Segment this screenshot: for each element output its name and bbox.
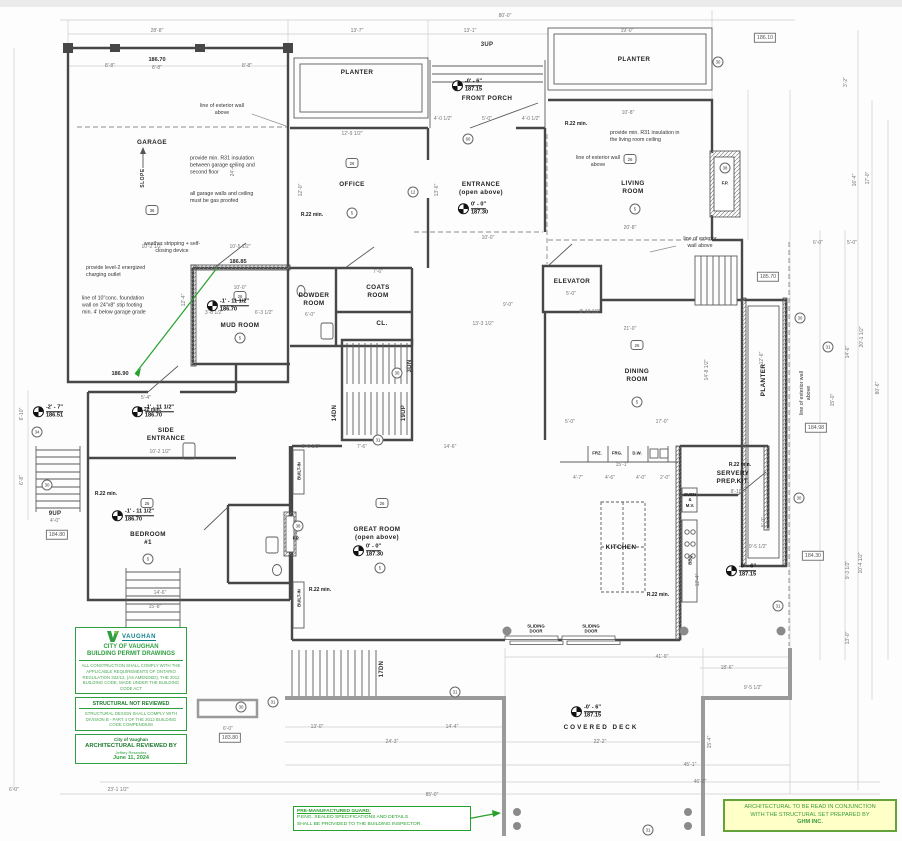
stamp-structural-section: STRUCTURAL NOT REVIEWED STRUCTURAL DESIG…	[75, 697, 187, 731]
spot-elevation: 186.90	[111, 371, 128, 377]
dimension-label: 8'-8"	[105, 63, 115, 69]
dimension-label: 21'-0"	[624, 326, 637, 332]
guard-note-title: PRE-MANUFACTURED GUARD:	[297, 809, 371, 814]
room-label: GREAT ROOM (open above)	[354, 526, 401, 542]
plan-note: provide level-2 energized charging outle…	[86, 265, 145, 279]
dimension-label: 5'-0"	[847, 240, 857, 246]
plan-note: all garage walls and ceiling must be gas…	[190, 191, 253, 205]
reference-tag: 30	[236, 702, 247, 713]
dimension-label: 12'-9 1/2"	[341, 131, 362, 137]
reference-tag: 5	[630, 204, 641, 215]
reference-tag: 26	[631, 340, 644, 350]
dimension-label: 5'-0"	[482, 116, 492, 122]
plan-note: provide min. R31 insulation between gara…	[190, 156, 255, 177]
dimension-label: 41'-9"	[656, 654, 669, 660]
stair-label: 9UP	[49, 511, 62, 517]
reference-tag: 26	[346, 158, 359, 168]
reference-tag: 5	[143, 554, 154, 565]
dimension-label: 5'-0"	[565, 419, 575, 425]
dimension-label: 14'-6"	[845, 346, 851, 359]
reference-tag: 31	[773, 601, 784, 612]
room-label: LIVING ROOM	[621, 180, 644, 196]
dimension-label: 14'-6"	[444, 444, 457, 450]
reference-tag: 26	[141, 498, 154, 508]
fixture-label: FRZ.	[592, 450, 602, 455]
reference-tag: 38	[720, 163, 731, 174]
elevation-value: 187.30	[471, 210, 488, 217]
floor-plan-canvas: GARAGEPLANTERFRONT PORCHPLANTEROFFICEENT…	[0, 0, 902, 841]
fixture-label: SLIDING DOOR	[527, 624, 544, 635]
reference-tag: 36	[146, 205, 159, 215]
dimension-label: 20'-8"	[624, 225, 637, 231]
stamp-body: ALL CONSTRUCTION SHALL COMPLY WITH THE A…	[79, 660, 183, 691]
dimension-label: 18'-6"	[721, 665, 734, 671]
reference-tag: 31	[268, 697, 279, 708]
elevation-marker: -1' - 11 1/2" 186.70	[207, 298, 249, 313]
boxed-elevation: 186.10	[754, 33, 776, 43]
structural-title: STRUCTURAL NOT REVIEWED	[79, 700, 183, 708]
elevation-target-icon	[207, 301, 218, 312]
dimension-label: 15'-4"	[707, 736, 713, 749]
insulation-note: R.22 min.	[647, 592, 669, 598]
elevation-level: 0' - 0"	[471, 201, 486, 209]
ghm-note: ARCHITECTURAL TO BE READ IN CONJUNCTION …	[723, 799, 897, 832]
dimension-label: 14'-8 1/2"	[704, 359, 710, 380]
dimension-label: 16'-4"	[852, 174, 858, 187]
vaughan-logo-text: VAUGHAN	[122, 634, 156, 641]
elevation-target-icon	[353, 546, 364, 557]
dimension-label: 10'-0"	[482, 235, 495, 241]
guard-note-body: P.ENG. SEALED SPECIFICATIONS AND DETAILS…	[297, 815, 467, 828]
dimension-label: 13'-1"	[464, 28, 477, 34]
dimension-label: 6'-8"	[19, 475, 25, 485]
fixture-label: FRG.	[612, 450, 622, 455]
dimension-label: 17'-0"	[656, 419, 669, 425]
elevation-level: -1' - 11 1/2"	[220, 298, 249, 306]
dimension-label: 28'-8"	[151, 28, 164, 34]
room-label: BEDROOM #1	[130, 531, 166, 547]
dimension-label: 6'-3 1/2"	[255, 310, 273, 316]
room-label: KITCHEN	[606, 544, 637, 552]
reference-tag: 26	[624, 154, 637, 164]
elevation-value: 187.30	[366, 552, 383, 559]
plan-note: line of exterior wall above	[799, 371, 813, 415]
dimension-label: 5'-4"	[141, 395, 151, 401]
dimension-label: 4'-0 1/2"	[434, 116, 452, 122]
reference-tag: 30	[392, 368, 403, 379]
elevation-level: -1' - 11 1/2"	[145, 404, 174, 412]
elevation-target-icon	[132, 407, 143, 418]
reference-tag: 60	[463, 134, 474, 145]
elevation-marker: -1' - 11 1/2" 186.70	[112, 508, 154, 523]
dimension-label: 15'-1"	[616, 462, 629, 468]
ghm-note-text: ARCHITECTURAL TO BE READ IN CONJUNCTION …	[727, 804, 893, 819]
fixture-label: SLIDING DOOR	[582, 624, 599, 635]
reviewed-org: City of Vaughan	[79, 737, 183, 742]
reference-tag: 30	[42, 480, 53, 491]
elevation-marker: 0' - 0" 187.30	[353, 543, 383, 558]
dimension-label: 12'-6"	[759, 352, 765, 365]
stair-label: 19UP	[401, 405, 407, 421]
dimension-label: 80'-0"	[499, 13, 512, 19]
dimension-label: 5'-0"	[761, 517, 767, 527]
fixture-label: BUILT-IN	[296, 589, 301, 607]
stair-label: 3UP	[481, 42, 494, 48]
elevation-value: 187.15	[739, 572, 756, 579]
dimension-label: 9'-5 1/2"	[744, 685, 762, 691]
guard-note: PRE-MANUFACTURED GUARD: P.ENG. SEALED SP…	[293, 806, 471, 831]
room-label: DINING ROOM	[625, 368, 649, 384]
boxed-elevation: 183.80	[219, 733, 241, 743]
room-label: COVERED DECK	[564, 724, 639, 732]
dimension-label: 9'-3 1/2"	[845, 561, 851, 579]
room-label: OFFICE	[339, 181, 365, 189]
reference-tag: 12	[408, 187, 419, 198]
room-label: PLANTER	[341, 69, 374, 77]
plan-note: weather stripping + self- closing device	[144, 241, 200, 255]
plan-note: provide min. R31 insulation in the livin…	[610, 130, 680, 144]
reviewed-title: ARCHITECTURAL REVIEWED BY	[79, 743, 183, 749]
elevation-level: -0' - 6"	[465, 78, 482, 86]
dimension-label: 22'-2"	[594, 739, 607, 745]
room-label: PLANTER	[760, 364, 768, 397]
fixture-label: OVEN & M.V.	[684, 492, 696, 508]
dimension-label: 6'-0"	[9, 787, 19, 793]
elevation-value: 187.15	[465, 87, 482, 94]
dimension-label: 12'-4"	[695, 574, 701, 587]
reference-tag: 31	[643, 825, 654, 836]
dimension-label: 10'-4 1/2"	[858, 552, 864, 573]
elevation-target-icon	[452, 81, 463, 92]
dimension-label: 46'-5"	[694, 779, 707, 785]
dimension-label: 8'-10 1/2"	[579, 309, 600, 315]
reference-tag: 5	[632, 397, 643, 408]
reference-tag: 5	[375, 563, 386, 574]
insulation-note: R.22 min.	[95, 491, 117, 497]
dimension-label: 5'-6 1/2"	[302, 444, 320, 450]
elevation-level: -2' - 7"	[46, 404, 63, 412]
insulation-note: R.22 min.	[301, 212, 323, 218]
dimension-label: 10'-2 1/2"	[149, 449, 170, 455]
elevation-value: 186.70	[125, 517, 142, 524]
elevation-marker: -0' - 6" 187.15	[726, 563, 756, 578]
dimension-label: 13'-3 1/2"	[472, 321, 493, 327]
boxed-elevation: 184.30	[802, 551, 824, 561]
vaughan-logo: VAUGHAN	[79, 631, 183, 643]
fixture-label: F.P.	[293, 535, 300, 540]
elevation-level: -0' - 6"	[584, 704, 601, 712]
insulation-note: R.22 min.	[565, 121, 587, 127]
plan-note: line of exterior wall above	[683, 236, 716, 250]
vaughan-logo-icon	[106, 631, 120, 643]
elevation-value: 186.51	[46, 413, 63, 420]
room-label: ENTRANCE (open above)	[459, 181, 503, 197]
room-label: MUD ROOM	[221, 322, 260, 330]
dimension-label: 5'-0"	[566, 291, 576, 297]
dimension-label: 24'-3"	[386, 739, 399, 745]
dimension-label: 6'-0"	[305, 312, 315, 318]
structural-body: STRUCTURAL DESIGN SHALL COMPLY WITH DIVI…	[79, 708, 183, 728]
elevation-target-icon	[33, 407, 44, 418]
dimension-label: 3'-2"	[843, 77, 849, 87]
reference-tag: 26	[376, 498, 389, 508]
stair-label: 14DN	[332, 405, 338, 422]
dimension-label: 8'-10"	[731, 489, 744, 495]
dimension-label: 13'-7"	[351, 28, 364, 34]
plan-note: SLOPE	[140, 168, 147, 187]
elevation-target-icon	[458, 204, 469, 215]
room-label: POWDER ROOM	[299, 292, 330, 308]
room-label: ELEVATOR	[554, 278, 590, 286]
dimension-label: 4'-0"	[50, 518, 60, 524]
dimension-label: 4'-0 1/2"	[522, 116, 540, 122]
dimension-label: 80'-6"	[875, 382, 881, 395]
fixture-label: F.P.	[722, 180, 729, 185]
dimension-label: 6'-10"	[19, 408, 25, 421]
reference-tag: 31	[373, 435, 384, 446]
boxed-elevation: 184.98	[805, 423, 827, 433]
reference-tag: 31	[450, 687, 461, 698]
plan-note: line of exterior wall above	[576, 155, 620, 169]
dimension-label: 10'-8"	[622, 110, 635, 116]
reference-tag: 30	[795, 313, 806, 324]
dimension-label: 2'-0"	[660, 475, 670, 481]
elevation-level: -0' - 6"	[739, 563, 756, 571]
stair-label: 3DN	[407, 360, 413, 373]
elevation-level: 0' - 0"	[366, 543, 381, 551]
dimension-label: 13'-0"	[845, 632, 851, 645]
reference-tag: 30	[713, 57, 724, 68]
dimension-label: 8'-8"	[242, 63, 252, 69]
plan-note: line of exterior wall above	[200, 103, 244, 117]
dimension-label: 13'-6"	[434, 184, 440, 197]
boxed-elevation: 185.70	[757, 272, 779, 282]
room-label: SERVERY PREP.KIT.	[717, 470, 750, 486]
dimension-label: 14'-4"	[446, 724, 459, 730]
dimension-label: 10'-5 1/2"	[229, 244, 250, 250]
boxed-elevation: 184.80	[46, 530, 68, 540]
fixture-label: BBQ	[687, 555, 692, 565]
dimension-label: 12'-4"	[181, 294, 187, 307]
dimension-label: 15'-8"	[149, 604, 162, 610]
reference-tag: 30	[794, 493, 805, 504]
room-label: PLANTER	[618, 56, 651, 64]
room-label: COATS ROOM	[366, 284, 390, 300]
dimension-label: 4'-6"	[605, 475, 615, 481]
elevation-value: 186.70	[145, 413, 162, 420]
dimension-label: 8'-8"	[152, 65, 162, 71]
elevation-value: 186.70	[220, 307, 237, 314]
dimension-label: 9'-0"	[503, 302, 513, 308]
elevation-target-icon	[726, 566, 737, 577]
reference-tag: 31	[823, 342, 834, 353]
elevation-target-icon	[571, 707, 582, 718]
fixture-label: BUILT-IN	[296, 462, 301, 480]
plan-note: line of 10"conc. foundation wall on 24"x…	[82, 296, 146, 317]
room-label: GARAGE	[137, 139, 167, 147]
reference-tag: 38	[293, 521, 304, 532]
dimension-label: 85'-0"	[426, 792, 439, 798]
room-label: CL.	[376, 320, 387, 328]
dimension-label: 12'-0"	[298, 184, 304, 197]
sliding-door-panels	[505, 636, 620, 645]
elevation-marker: -2' - 7" 186.51	[33, 404, 63, 419]
dimension-label: 23'-1 1/2"	[107, 787, 128, 793]
reference-tag: 5	[235, 333, 246, 344]
elevation-target-icon	[112, 511, 123, 522]
room-label: SIDE ENTRANCE	[147, 427, 185, 443]
elevation-marker: -0' - 6" 187.15	[571, 704, 601, 719]
dimension-label: 15'-0"	[830, 394, 836, 407]
dimension-label: 14'-6"	[154, 590, 167, 596]
reference-tag: 5	[347, 208, 358, 219]
dimension-label: 7'-6"	[357, 444, 367, 450]
dimension-label: 6'-0"	[813, 240, 823, 246]
dimension-label: 19'-0"	[621, 28, 634, 34]
insulation-note: R.22 min.	[309, 587, 331, 593]
stamp-reviewed-section: City of Vaughan ARCHITECTURAL REVIEWED B…	[75, 734, 187, 764]
insulation-note: R.22 min.	[729, 462, 751, 468]
review-date: June 11, 2024	[79, 755, 183, 761]
dimension-label: 4'-7"	[573, 475, 583, 481]
dimension-label: 45'-1"	[684, 762, 697, 768]
room-label: FRONT PORCH	[462, 95, 513, 103]
green-leader-lines	[135, 268, 499, 820]
elevation-marker: 0' - 0" 187.30	[458, 201, 488, 216]
vaughan-stamp: VAUGHAN CITY OF VAUGHAN BUILDING PERMIT …	[75, 627, 187, 767]
dimension-label: 7'-6"	[373, 269, 383, 275]
dimension-label: 4'-0"	[636, 475, 646, 481]
elevation-marker: -1' - 11 1/2" 186.70	[132, 404, 174, 419]
elevation-marker: -0' - 6" 187.15	[452, 78, 482, 93]
stamp-title: CITY OF VAUGHAN BUILDING PERMIT DRAWINGS	[79, 644, 183, 658]
dimension-label: 9'-5 1/2"	[749, 544, 767, 550]
elevation-value: 187.15	[584, 713, 601, 720]
spot-elevation: 186.70	[148, 57, 165, 63]
reference-tag: 34	[32, 427, 43, 438]
fixture-label: D.W.	[632, 450, 641, 455]
dimension-label: 20'-1 1/2"	[859, 326, 865, 347]
spot-elevation: 186.85	[229, 259, 246, 265]
dimension-label: 6'-0"	[223, 726, 233, 732]
stair-label: 17DN	[379, 661, 385, 678]
stamp-permit-section: VAUGHAN CITY OF VAUGHAN BUILDING PERMIT …	[75, 627, 187, 694]
elevation-level: -1' - 11 1/2"	[125, 508, 154, 516]
ghm-note-firm: GHM INC.	[727, 819, 893, 827]
dimension-label: 13'-0"	[311, 724, 324, 730]
dimension-label: 17'-0"	[865, 172, 871, 185]
